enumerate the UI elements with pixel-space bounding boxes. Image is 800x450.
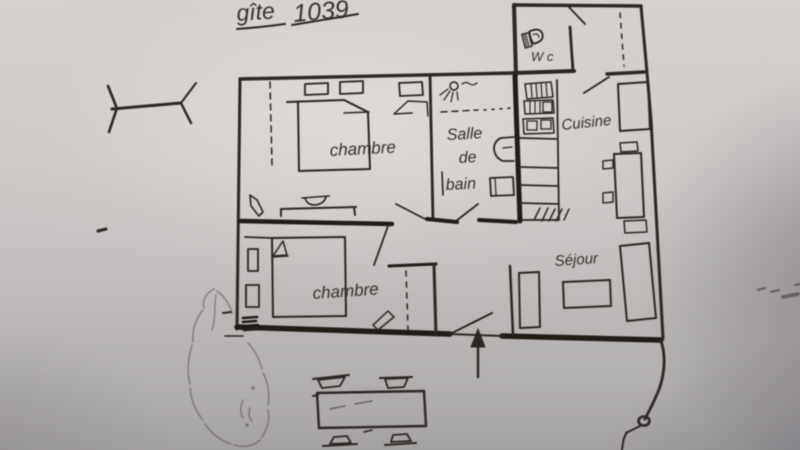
svg-text:Cuisine: Cuisine (561, 112, 613, 134)
svg-text:gîte: gîte (236, 0, 276, 26)
svg-text:W c: W c (531, 49, 554, 64)
svg-text:bain: bain (445, 175, 476, 194)
svg-text:de: de (458, 149, 477, 167)
svg-text:Salle: Salle (446, 125, 483, 144)
svg-text:chambre: chambre (329, 138, 396, 160)
svg-text:chambre: chambre (312, 279, 379, 303)
svg-text:Séjour: Séjour (554, 250, 599, 270)
svg-text:1039: 1039 (292, 0, 350, 28)
